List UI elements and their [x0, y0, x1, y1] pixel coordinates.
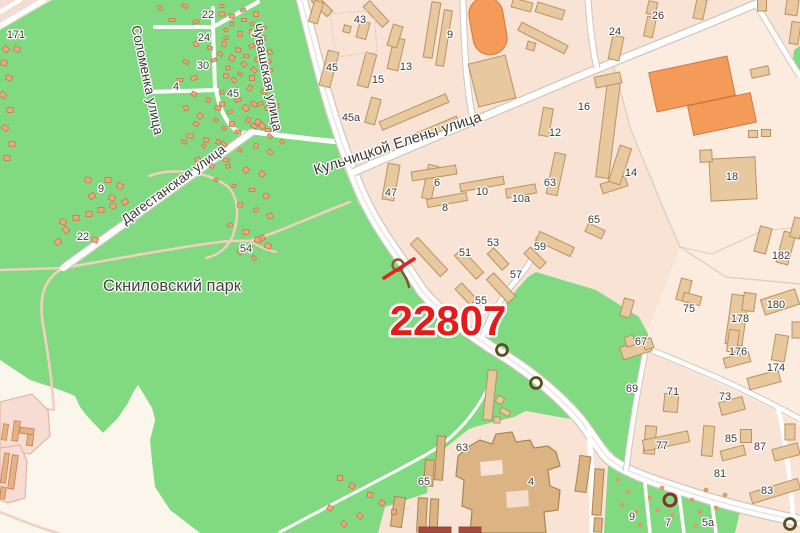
svg-text:24: 24 [609, 26, 621, 38]
svg-text:16: 16 [578, 101, 590, 113]
svg-text:12: 12 [549, 127, 561, 139]
svg-text:6: 6 [434, 177, 440, 189]
svg-text:59: 59 [534, 241, 546, 253]
svg-text:18: 18 [726, 171, 738, 183]
svg-text:4: 4 [528, 476, 534, 488]
svg-text:51: 51 [459, 247, 471, 259]
svg-text:176: 176 [729, 346, 747, 358]
svg-text:65: 65 [418, 476, 430, 488]
svg-text:15: 15 [372, 74, 384, 86]
svg-text:47: 47 [385, 187, 397, 199]
svg-text:13: 13 [400, 61, 412, 73]
svg-text:22: 22 [77, 231, 89, 243]
svg-text:30: 30 [197, 60, 209, 72]
svg-text:69: 69 [626, 383, 638, 395]
svg-text:81: 81 [714, 468, 726, 480]
svg-text:85: 85 [725, 433, 737, 445]
svg-text:26: 26 [652, 10, 664, 22]
svg-text:45а: 45а [342, 112, 361, 124]
svg-text:83: 83 [761, 485, 773, 497]
svg-text:63: 63 [456, 442, 468, 454]
svg-text:5а: 5а [702, 517, 715, 529]
svg-text:22: 22 [202, 9, 214, 21]
svg-text:22807: 22807 [390, 297, 507, 344]
svg-text:87: 87 [754, 441, 766, 453]
svg-text:54: 54 [240, 243, 252, 255]
svg-text:73: 73 [719, 391, 731, 403]
svg-text:77: 77 [656, 440, 668, 452]
svg-text:57: 57 [510, 269, 522, 281]
svg-text:9: 9 [98, 183, 104, 195]
svg-text:45: 45 [326, 62, 338, 74]
svg-text:171: 171 [7, 29, 25, 41]
svg-text:9: 9 [629, 511, 635, 523]
svg-text:53: 53 [487, 237, 499, 249]
svg-text:71: 71 [667, 386, 679, 398]
svg-text:7: 7 [665, 517, 671, 529]
svg-text:182: 182 [772, 250, 790, 262]
svg-text:178: 178 [731, 313, 749, 325]
svg-text:45: 45 [227, 88, 239, 100]
svg-text:4: 4 [173, 81, 179, 93]
svg-text:14: 14 [625, 167, 637, 179]
svg-text:8: 8 [442, 202, 448, 214]
svg-text:174: 174 [767, 362, 785, 374]
svg-text:67: 67 [635, 336, 647, 348]
svg-text:180: 180 [767, 299, 785, 311]
svg-text:Скниловский парк: Скниловский парк [103, 277, 242, 295]
svg-text:75: 75 [683, 303, 695, 315]
svg-text:24: 24 [198, 32, 210, 44]
svg-text:65: 65 [588, 214, 600, 226]
svg-text:9: 9 [447, 29, 453, 41]
svg-text:43: 43 [354, 14, 366, 26]
svg-text:63: 63 [544, 177, 556, 189]
svg-text:10а: 10а [512, 193, 531, 205]
svg-text:10: 10 [476, 186, 488, 198]
